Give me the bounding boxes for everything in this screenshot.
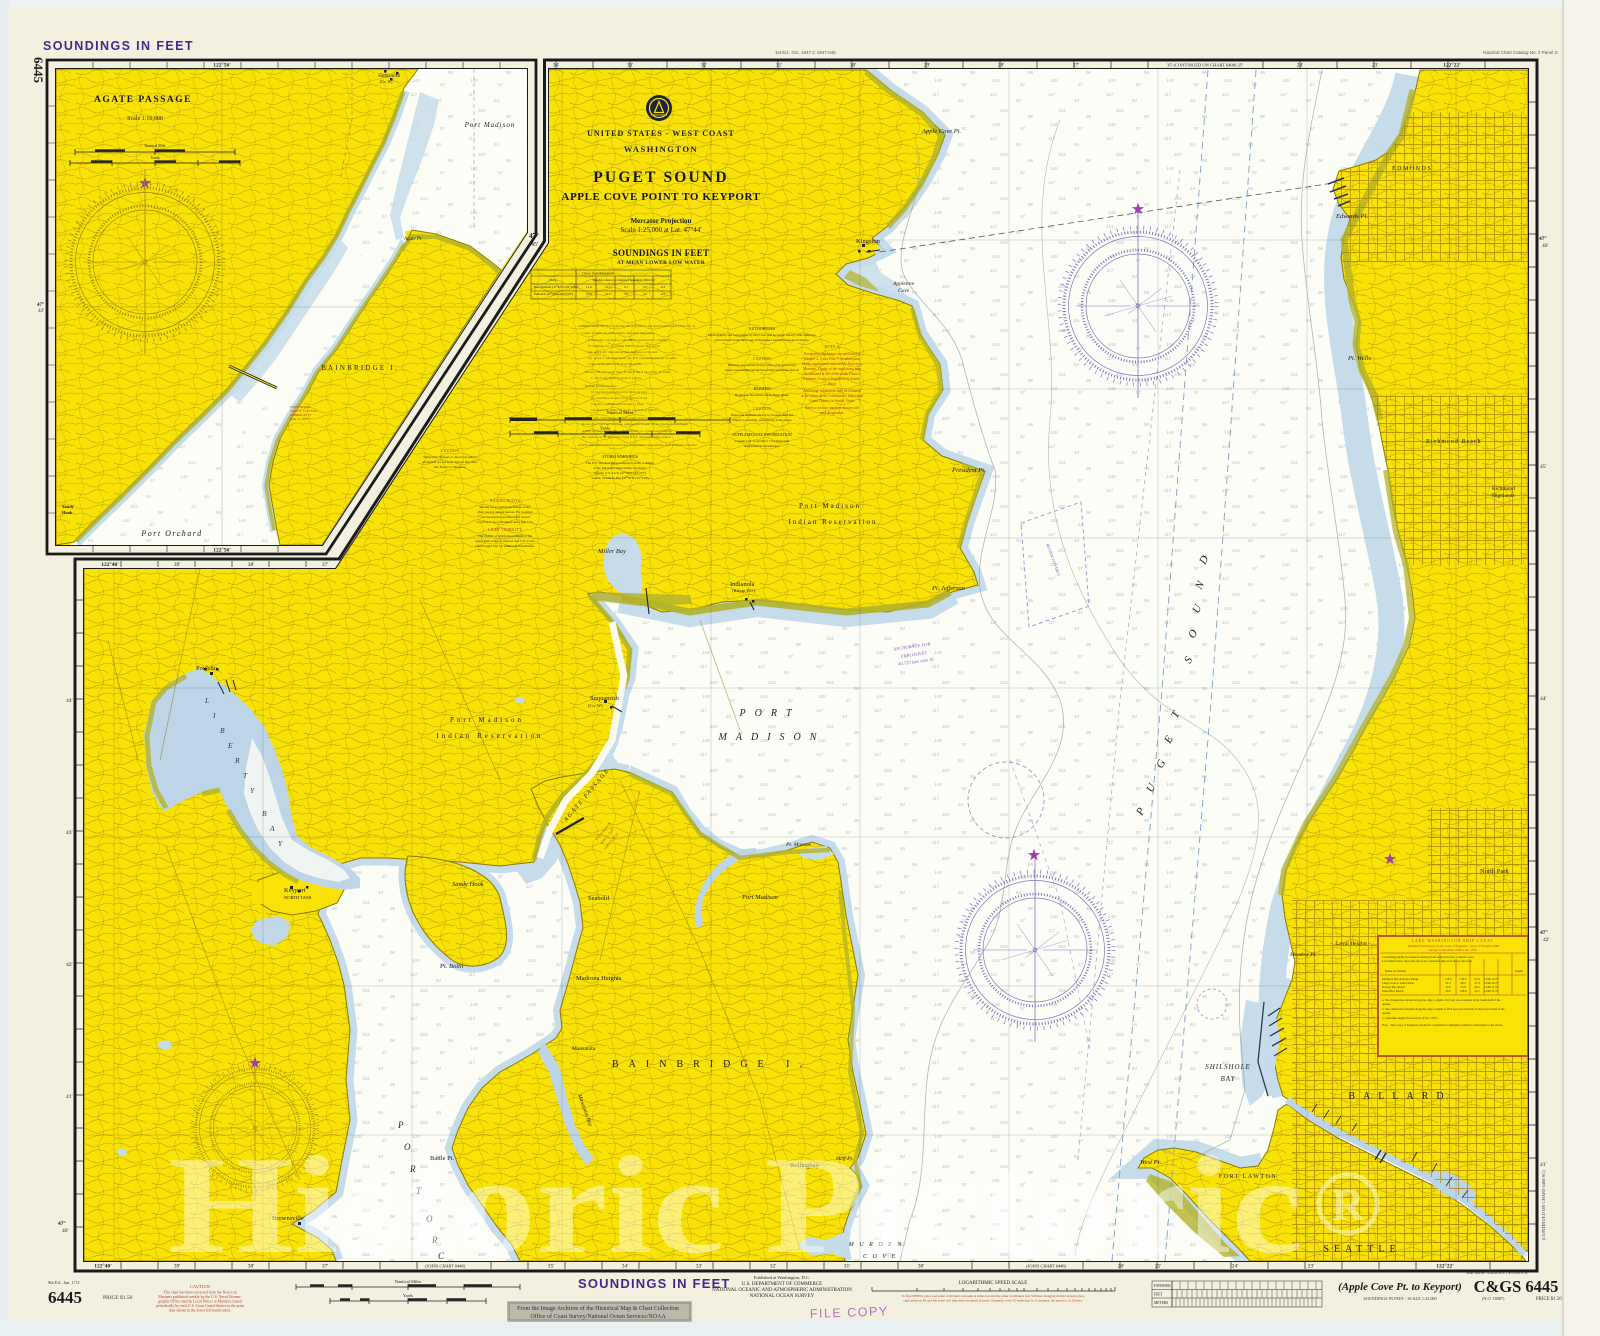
svg-text:Name of Channel: Name of Channel: [1385, 969, 1406, 973]
svg-text:PRICE $1.50: PRICE $1.50: [103, 1294, 133, 1301]
svg-text:Indian Reservation: Indian Reservation: [788, 518, 877, 526]
svg-text:The charter of within the nomi: The charter of within the nominal or the: [478, 534, 533, 538]
svg-text:FATHOMS: FATHOMS: [1154, 1284, 1171, 1288]
svg-text:Qk. quick Alt. altern: Qk. quick Alt. alternating DIA diaphone …: [588, 350, 658, 354]
svg-text:AUTH authorized. Obstr obst: AUTH authorized. Obstr obstruction. P.A …: [578, 443, 697, 447]
svg-text:Buoys: T.B temporary buoy: Buoys: T.B temporary buoy N nun B black …: [585, 370, 671, 374]
svg-text:41': 41': [1540, 1162, 1547, 1168]
svg-text:PUGET SOUND: PUGET SOUND: [593, 169, 728, 186]
svg-text:Agate Pt.: Agate Pt.: [403, 237, 423, 242]
svg-text:-4.3: -4.3: [660, 285, 665, 289]
svg-text:L: L: [204, 696, 209, 705]
svg-text:supplemental information.: supplemental information.: [744, 444, 780, 448]
svg-text:UNITED STATES - WEST COAST: UNITED STATES - WEST COAST: [587, 129, 735, 138]
svg-text:Heights referred to datum of s: Heights referred to datum of soundings (…: [593, 278, 655, 282]
svg-text:quarter.: quarter.: [1382, 1011, 1391, 1015]
svg-text:Suquamish: Suquamish: [378, 74, 401, 79]
svg-text:23': 23': [1308, 1264, 1315, 1270]
svg-text:c. Centerline depths from sur: c. Centerline depths from survey of Oct.…: [1382, 1016, 1438, 1020]
svg-text:President Pt.: President Pt.: [951, 467, 986, 474]
svg-text:Gp. group I. Qk. inte: Gp. group I. Qk. interrupted quick W rep…: [588, 356, 677, 360]
svg-text:Bottom Characteristics:: Bottom Characteristics:: [585, 384, 617, 388]
svg-text:SHILSHOLE: SHILSHOLE: [1205, 1063, 1251, 1071]
svg-text:C&GS 6445: C&GS 6445: [1474, 1277, 1559, 1296]
svg-text:Pt. Bolin: Pt. Bolin: [439, 963, 463, 970]
svg-text:Loyal Heights: Loyal Heights: [1336, 941, 1367, 947]
svg-text:geographic range is charted. S: geographic range is charted. See U.S. Co…: [475, 539, 534, 543]
svg-text:31.2: 31.2: [1474, 989, 1480, 993]
svg-text:S grass S sand: S grass S sand stk soft bu blue yl white: [591, 402, 645, 406]
svg-text:47°: 47°: [37, 303, 44, 308]
svg-text:Bn. daybeacon W. PR: Bn. daybeacon W. PR. radio tower D.F.S. …: [582, 435, 671, 439]
svg-text:APPLE COVE POINT TO KEYPORT: APPLE COVE POINT TO KEYPORT: [561, 191, 760, 203]
svg-text:F. fixed Mo. (A) mor: F. fixed Mo. (A) morse code OBSC obscure…: [588, 338, 667, 342]
svg-text:Apple Cove Pt.: Apple Cove Pt.: [921, 128, 962, 135]
svg-text:Fl. flashing Occ. occult: Fl. flashing Occ. occulting WHIS whistle…: [588, 344, 661, 348]
svg-text:a. The channel has shoaled al: a. The channel has shoaled along the edg…: [1382, 998, 1501, 1002]
svg-text:BAINBRIDGE I.: BAINBRIDGE I.: [321, 364, 399, 372]
svg-text:Richmond: Richmond: [1492, 486, 1515, 492]
svg-text:Local Notices to Mariners and: Local Notices to Mariners and Light List…: [477, 520, 534, 524]
svg-text:HOR CL 58 FT: HOR CL 58 FT: [290, 417, 309, 421]
svg-text:NATIONAL OCEANIC AND ATMOSPHER: NATIONAL OCEANIC AND ATMOSPHERIC ADMINIS…: [712, 1288, 852, 1293]
svg-text:30': 30': [850, 63, 857, 69]
svg-text:Cl clay M mud: Cl clay M mud hrd hard bk black gy grey: [591, 390, 648, 394]
svg-text:44': 44': [1540, 696, 1547, 702]
svg-text:47°: 47°: [1540, 929, 1548, 936]
svg-text:SEATTLE: SEATTLE: [1323, 1244, 1400, 1255]
svg-text:STORM WARNINGS: STORM WARNINGS: [602, 454, 638, 459]
svg-text:27': 27': [1073, 63, 1080, 69]
svg-text:Refer to section numbers shown: Refer to section numbers shown with: [805, 406, 859, 410]
svg-text:Richmond Beach: Richmond Beach: [1426, 439, 1482, 445]
svg-text:FEET: FEET: [1154, 1293, 1163, 1297]
svg-text:Pt. Wells: Pt. Wells: [1347, 355, 1371, 362]
svg-text:Improved channels shown by bro: Improved channels shown by broken lines …: [731, 413, 794, 417]
svg-text:TIDAL INFORMATION: TIDAL INFORMATION: [582, 272, 615, 276]
svg-text:AUTHORITIES: AUTHORITIES: [749, 326, 775, 331]
svg-text:43': 43': [38, 309, 44, 314]
svg-text:Yards: Yards: [600, 426, 611, 431]
svg-text:Edwards Pt.: Edwards Pt.: [1335, 213, 1368, 220]
svg-text:11.4: 11.4: [586, 285, 592, 289]
svg-text:Racing buoys within the limits: Racing buoys within the limits of this: [479, 505, 531, 509]
svg-text:CAUTION: CAUTION: [441, 448, 459, 453]
svg-text:BAY: BAY: [1220, 1075, 1235, 1083]
svg-text:Nautical Miles: Nautical Miles: [607, 410, 634, 415]
svg-text:Solar sunrise 74.82cm H.S. |: Solar sunrise 74.82cm H.S. | 48 39cm E.W…: [1466, 1271, 1528, 1275]
svg-text:41': 41': [66, 1094, 73, 1100]
svg-text:122°40': 122°40': [101, 561, 119, 568]
svg-text:CAUTION: CAUTION: [190, 1284, 211, 1289]
svg-text:and revisions from the Corps o: and revisions from the Corps of Engineer…: [715, 338, 810, 342]
svg-text:b. The channel has shoaled al: b. The channel has shoaled along the edg…: [1382, 1007, 1505, 1011]
svg-text:PORT: PORT: [739, 708, 801, 719]
svg-text:SOUNDINGS IN FEET: SOUNDINGS IN FEET: [43, 39, 194, 53]
svg-text:42': 42': [1543, 937, 1550, 943]
svg-text:3.2: 3.2: [643, 285, 647, 289]
svg-text:METERS: METERS: [1154, 1301, 1168, 1305]
svg-text:ABBREVIATIONS (For complete l: ABBREVIATIONS (For complete list of Symb…: [578, 324, 695, 328]
svg-text:3.0: 3.0: [643, 292, 647, 296]
svg-text:28': 28': [998, 63, 1005, 69]
svg-text:42': 42': [66, 962, 73, 968]
svg-text:at the following approximate l: at the following approximate locations:: [593, 466, 646, 470]
svg-text:SOUNDINGS IN FEET: SOUNDINGS IN FEET: [613, 248, 710, 258]
svg-text:Pt. Jefferson: Pt. Jefferson: [931, 585, 965, 592]
svg-text:32': 32': [701, 63, 708, 69]
svg-text:Meadow Pt.: Meadow Pt.: [1289, 952, 1317, 958]
svg-text:Anchorage regulations may be o: Anchorage regulations may be obtained: [803, 389, 860, 393]
svg-text:6.1: 6.1: [624, 285, 628, 289]
svg-text:AGATE PASSAGE: AGATE PASSAGE: [94, 95, 192, 105]
svg-text:35' (CONTINUED ON CHART 6400): 35' (CONTINUED ON CHART 6400) 25': [1167, 63, 1243, 68]
svg-text:Port Madison: Port Madison: [741, 894, 778, 901]
svg-text:navigation are not indicated o: navigation are not indicated on this cha…: [422, 460, 478, 464]
svg-text:HEIGHTS: HEIGHTS: [753, 386, 770, 391]
svg-text:RACING BUOYS: RACING BUOYS: [490, 498, 520, 503]
svg-text:-4.2: -4.2: [660, 292, 665, 296]
svg-text:chart are not shown hereon. Fo: chart are not shown hereon. For location: [478, 510, 533, 514]
svg-text:6445: 6445: [31, 57, 46, 84]
svg-text:Mariners published weekly by t: Mariners published weekly by the U.S. Na…: [158, 1295, 242, 1299]
svg-text:47°: 47°: [58, 1220, 66, 1227]
svg-text:10.0: 10.0: [605, 292, 611, 296]
svg-text:(Co. W): (Co. W): [588, 703, 603, 708]
svg-text:LIGHT VISIBILITY: LIGHT VISIBILITY: [488, 527, 522, 532]
svg-text:This chart has been corrected: This chart has been corrected from the N…: [163, 1291, 236, 1295]
svg-text:Kingston: Kingston: [856, 238, 881, 245]
svg-text:45': 45': [531, 242, 538, 248]
svg-text:Sandy Hook: Sandy Hook: [452, 881, 484, 888]
svg-text:44': 44': [66, 698, 73, 704]
svg-text:WASHINGTON: WASHINGTON: [624, 144, 698, 154]
svg-text:yearly supplements and weekly: yearly supplements and weekly Notices to: [802, 362, 863, 366]
svg-text:Mariners. Copies of the regul: Mariners. Copies of the regulations may: [803, 367, 861, 371]
svg-text:be obtained at the office of t: be obtained at the office of the Distric…: [804, 372, 860, 376]
svg-text:North Park: North Park: [1480, 868, 1509, 875]
svg-text:Guard Light List for additiona: Guard Light List for additional informat…: [475, 544, 535, 548]
svg-text:Wash.: Wash.: [828, 382, 837, 386]
svg-text:122°40': 122°40': [94, 1263, 112, 1270]
svg-text:29.0: 29.0: [1445, 989, 1451, 993]
svg-text:Hydrography and topography by: Hydrography and topography by the Coast …: [708, 333, 816, 337]
svg-text:CAUTION: CAUTION: [753, 356, 771, 361]
svg-text:Port Madison: Port Madison: [450, 716, 524, 724]
svg-text:B: B: [262, 809, 267, 818]
svg-text:Scale 1:25,000 at Lat. 47°44': Scale 1:25,000 at Lat. 47°44': [620, 226, 701, 234]
svg-text:R: R: [234, 756, 240, 765]
svg-text:47°: 47°: [1539, 235, 1547, 242]
svg-text:39': 39': [174, 562, 181, 568]
svg-text:Indianola: Indianola: [730, 581, 755, 588]
svg-text:122°56': 122°56': [213, 62, 231, 69]
svg-text:37': 37': [322, 562, 329, 568]
svg-text:graphic Office and the Local N: graphic Office and the Local Notice to M…: [158, 1300, 242, 1304]
svg-text:Mariners are warned to stay cl: Mariners are warned to stay clear of the…: [728, 363, 797, 367]
svg-text:Note - The Corps of Engineers: Note - The Corps of Engineers should be …: [1382, 1023, 1503, 1027]
svg-text:122°56': 122°56': [213, 547, 231, 554]
svg-text:Madrona Heights: Madrona Heights: [576, 975, 622, 982]
svg-text:±26.6: ±26.6: [1460, 989, 1467, 993]
svg-text:EDMONDS: EDMONDS: [1392, 166, 1432, 172]
svg-text:(N.O. 18087): (N.O. 18087): [1482, 1296, 1505, 1301]
svg-text:31': 31': [776, 63, 783, 69]
svg-text:40': 40': [62, 1228, 69, 1234]
svg-text:38': 38': [248, 562, 255, 568]
svg-text:I: I: [212, 711, 216, 720]
svg-text:10.5: 10.5: [605, 285, 611, 289]
svg-text:Port Madison: Port Madison: [464, 121, 516, 129]
svg-text:Co coral Rk rock: Co coral Rk rock rky rocky bl blue rd re…: [591, 396, 648, 400]
svg-text:T min equal interval: T min equal interval M Wash Bn drums: [588, 362, 642, 366]
svg-text:B: B: [220, 726, 225, 735]
svg-text:(CONTINUED ON CHART 6460 SC): (CONTINUED ON CHART 6460 SC): [1541, 1170, 1546, 1240]
svg-text:FILE COPY: FILE COPY: [810, 1304, 889, 1321]
svg-text:BAINBRIDGE I.: BAINBRIDGE I.: [612, 1059, 812, 1070]
svg-text:Nautical Chart Catalog No. 2 P: Nautical Chart Catalog No. 2 Panel G: [1483, 50, 1558, 55]
svg-text:33': 33': [627, 63, 634, 69]
svg-text:45': 45': [1540, 464, 1547, 470]
svg-text:LAKE WASHINGTON SHIP CANAL: LAKE WASHINGTON SHIP CANAL: [1412, 939, 1494, 943]
svg-text:Hook: Hook: [62, 510, 73, 515]
svg-text:MADISON: MADISON: [718, 732, 826, 743]
svg-text:Heights in feet above Mean Hig: Heights in feet above Mean High Water.: [735, 393, 790, 397]
svg-text:Pt. Monroe: Pt. Monroe: [785, 842, 811, 848]
svg-text:(Co. W): (Co. W): [380, 80, 393, 84]
svg-text:29': 29': [924, 63, 931, 69]
svg-text:(Kitsap P.O.): (Kitsap P.O.): [732, 588, 756, 593]
svg-text:Mercator Projection: Mercator Projection: [631, 217, 692, 225]
svg-text:C can S spar: C can S spar R red G green Y yellow: [591, 376, 642, 380]
svg-text:area designation.: area designation.: [820, 411, 844, 415]
svg-text:12.68.13.72: 12.68.13.72: [1484, 989, 1499, 993]
svg-text:AT MEAN LOWER LOW WATER: AT MEAN LOWER LOW WATER: [617, 260, 705, 266]
svg-text:5.8: 5.8: [624, 292, 628, 296]
svg-text:122°22': 122°22': [1443, 62, 1461, 69]
svg-text:Highlands: Highlands: [1492, 493, 1515, 499]
svg-text:From the Image Archives of the: From the Image Archives of the Historica…: [517, 1305, 679, 1312]
svg-text:NATIONAL OCEAN SURVEY: NATIONAL OCEAN SURVEY: [750, 1294, 815, 1299]
svg-text:Temporary changes or defects i: Temporary changes or defects in aids to: [423, 455, 477, 459]
svg-text:Depth: Depth: [1515, 969, 1523, 973]
svg-text:Manzanita: Manzanita: [572, 1046, 596, 1052]
svg-text:Scale 1:10,000: Scale 1:10,000: [127, 116, 163, 122]
svg-text:24': 24': [1297, 63, 1304, 69]
svg-text:Office of Coast Survey/Nationa: Office of Coast Survey/National Ocean Se…: [530, 1313, 666, 1320]
svg-text:BALLARD: BALLARD: [1348, 1091, 1451, 1102]
svg-text:Sandy: Sandy: [62, 504, 75, 509]
svg-text:122°22': 122°22': [1436, 1263, 1454, 1270]
svg-text:PRICE $1.50: PRICE $1.50: [1536, 1297, 1562, 1302]
svg-text:Seabold: Seabold: [588, 895, 610, 902]
svg-text:surveys of December 1948 to Oc: surveys of December 1948 to Oct. 1972.: [1429, 948, 1478, 952]
svg-text:The U.S. Weather Bureau displa: The U.S. Weather Bureau displays storm w…: [586, 461, 655, 465]
svg-text:Historic Pictoric: Historic Pictoric: [168, 1128, 1303, 1283]
svg-text:R: R: [1331, 1179, 1365, 1230]
svg-text:NOTE A: NOTE A: [824, 344, 839, 349]
svg-text:Nautical Mile: Nautical Mile: [145, 144, 166, 148]
svg-text:(Apple Cove Pt. to Keyport): (Apple Cove Pt. to Keyport): [1338, 1281, 1462, 1293]
svg-text:SUPPLEMENTAL INFORMATION: SUPPLEMENTAL INFORMATION: [732, 432, 791, 437]
svg-text:Indian Reservation: Indian Reservation: [436, 732, 543, 740]
svg-text:10.8: 10.8: [586, 292, 592, 296]
svg-text:Miller Bay: Miller Bay: [597, 548, 626, 555]
svg-text:CAUTION: CAUTION: [753, 406, 771, 411]
svg-text:Port Madison: Port Madison: [799, 502, 861, 510]
svg-text:1st Ed., Oct. 1947 C 1947-0: 1st Ed., Oct. 1947 C 1947-046: [775, 50, 836, 55]
svg-text:A: A: [269, 824, 275, 833]
svg-text:riprap surrounding navigationa: riprap surrounding navigational light st…: [725, 368, 800, 372]
svg-text:Consult U.S. Coast Pilot 7 for: Consult U.S. Coast Pilot 7 for important: [735, 439, 790, 443]
svg-text:NORTH TASK: NORTH TASK: [284, 895, 312, 900]
svg-text:Yards: Yards: [403, 1293, 414, 1298]
svg-text:47°: 47°: [529, 232, 539, 240]
svg-text:and description see the Coast: and description see the Coast Guard: [481, 515, 530, 519]
svg-text:Lights: (Lights are white unle: Lights: (Lights are white unless otherwi…: [582, 331, 654, 335]
svg-text:43': 43': [66, 830, 73, 836]
svg-text:Navigation regulations are pub: Navigation regulations are published in: [804, 352, 861, 356]
svg-text:Yards: Yards: [151, 156, 160, 160]
svg-text:23': 23': [1372, 63, 1379, 69]
svg-text:quarter.: quarter.: [1382, 1002, 1391, 1006]
svg-text:34': 34': [553, 63, 560, 69]
svg-text:periodically by each U.S. Coas: periodically by each U.S. Coast Guard di…: [156, 1304, 245, 1308]
svg-text:Low Water below the locks and: Low Water below the locks and at low rep…: [1382, 959, 1473, 963]
svg-text:E: E: [227, 741, 233, 750]
svg-text:See Notice to Mariners.: See Notice to Mariners.: [434, 465, 466, 469]
svg-text:Cove: Cove: [898, 288, 910, 294]
svg-text:Keyport: Keyport: [284, 887, 305, 894]
svg-text:46': 46': [1542, 243, 1549, 249]
svg-text:6445: 6445: [48, 1288, 82, 1307]
svg-text:date shown in the lower left h: date shown in the lower left hand corner…: [169, 1309, 231, 1313]
svg-text:Union Bay Reach: Union Bay Reach: [1382, 989, 1404, 993]
svg-text:Place: Place: [550, 278, 557, 282]
svg-text:Appletree: Appletree: [892, 281, 915, 287]
svg-text:Port Orchard: Port Orchard: [140, 529, 202, 538]
